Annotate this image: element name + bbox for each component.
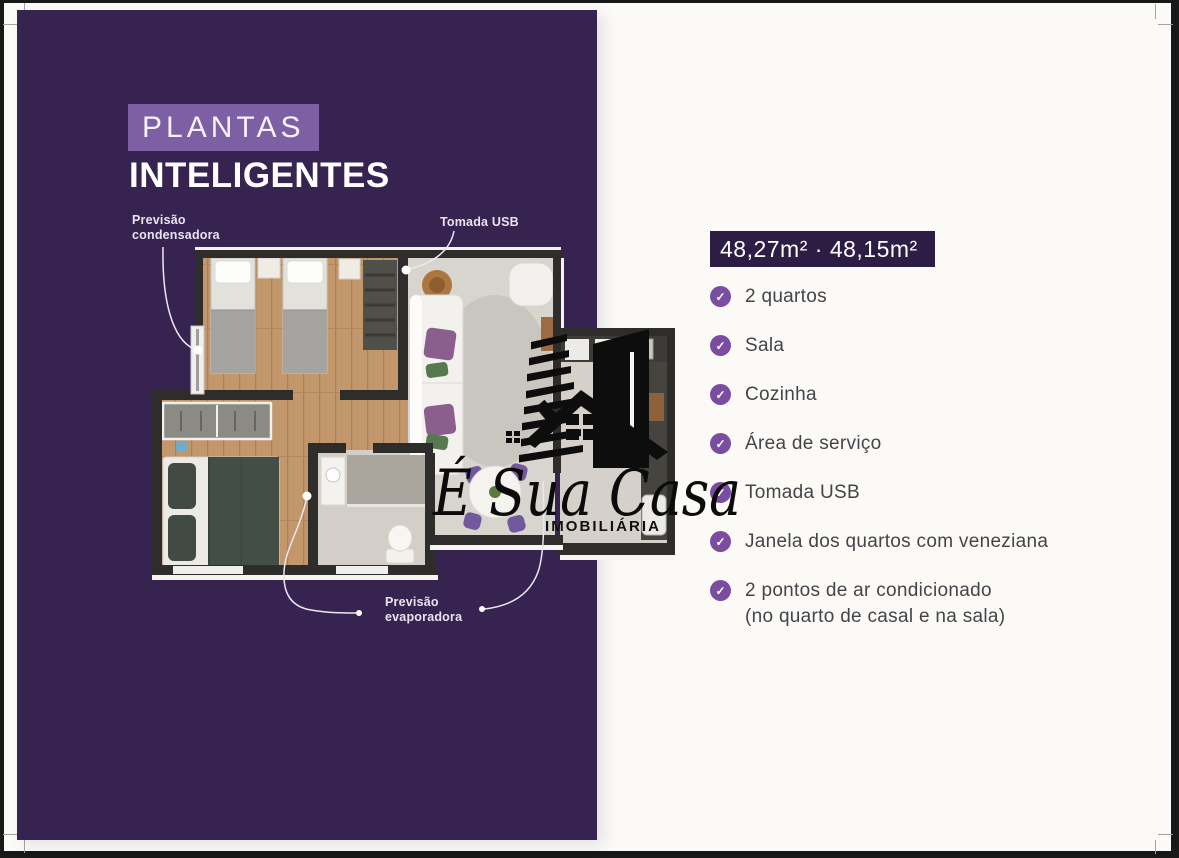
list-item: ✓ Janela dos quartos com veneziana [710, 531, 1130, 553]
single-bed [211, 258, 255, 373]
check-icon: ✓ [710, 531, 731, 552]
real-estate-flyer: { "colors": { "panel_purple": "#372350",… [0, 0, 1179, 858]
kitchen-sink [631, 339, 653, 359]
list-item: ✓ Tomada USB [710, 482, 1130, 504]
nightstand [339, 259, 360, 279]
list-item: ✓ Sala [710, 335, 1130, 357]
single-bed [283, 258, 327, 373]
armchair [509, 263, 553, 306]
feature-label: 2 quartos [745, 286, 827, 308]
shower [347, 455, 428, 507]
window [173, 566, 243, 574]
table-plant [489, 486, 501, 498]
crop-mark [1158, 24, 1173, 25]
side-table-top [429, 277, 445, 293]
callout-evaporadora-label: Previsão evaporadora [385, 595, 462, 625]
master-bedroom-furniture [163, 403, 279, 567]
check-icon: ✓ [710, 482, 731, 503]
list-item: ✓ 2 quartos [710, 286, 1130, 308]
check-icon: ✓ [710, 580, 731, 601]
check-icon: ✓ [710, 384, 731, 405]
page-title: INTELIGENTES [129, 156, 390, 196]
callout-condensadora-label: Previsão condensadora [132, 213, 220, 243]
kitchen-appliance [565, 339, 589, 360]
crop-mark [1158, 834, 1173, 835]
feature-list: ✓ 2 quartos ✓ Sala ✓ Cozinha ✓ Área de s… [710, 286, 1130, 655]
floor-object [176, 442, 188, 451]
crop-mark [1155, 4, 1156, 19]
title-highlight-text: PLANTAS [142, 111, 305, 145]
cooktop [595, 339, 621, 359]
window [336, 566, 388, 574]
feature-label: Área de serviço [745, 433, 882, 455]
shower-glass [347, 504, 428, 507]
crop-mark [3, 24, 18, 25]
crop-mark [1155, 840, 1156, 854]
double-bed [163, 457, 279, 567]
tv-console [541, 317, 555, 351]
list-item: ✓ Área de serviço [710, 433, 1130, 455]
callout-tomada-usb-label: Tomada USB [440, 215, 519, 230]
floor-plan [143, 243, 683, 588]
feature-label: 2 pontos de ar condicionado (no quarto d… [745, 580, 1005, 628]
list-item: ✓ 2 pontos de ar condicionado (no quarto… [710, 580, 1130, 628]
exterior-edge [195, 247, 561, 250]
check-icon: ✓ [710, 335, 731, 356]
toilet [386, 525, 414, 563]
feature-label: Tomada USB [745, 482, 860, 504]
feature-label: Cozinha [745, 384, 817, 406]
crop-mark [24, 839, 25, 853]
title-highlight-box: PLANTAS [128, 104, 319, 151]
feature-label: Sala [745, 335, 784, 357]
nightstand [258, 258, 280, 278]
check-icon: ✓ [710, 433, 731, 454]
feature-label: Janela dos quartos com veneziana [745, 531, 1048, 553]
wardrobe [363, 260, 397, 350]
list-item: ✓ Cozinha [710, 384, 1130, 406]
sink [326, 468, 340, 482]
area-badge: 48,27m² · 48,15m² [710, 231, 935, 267]
laundry-sink [642, 495, 666, 535]
sliding-wardrobe [163, 403, 271, 439]
crop-mark [3, 834, 18, 835]
cutting-board [644, 393, 664, 421]
exterior-edge [561, 258, 564, 330]
check-icon: ✓ [710, 286, 731, 307]
